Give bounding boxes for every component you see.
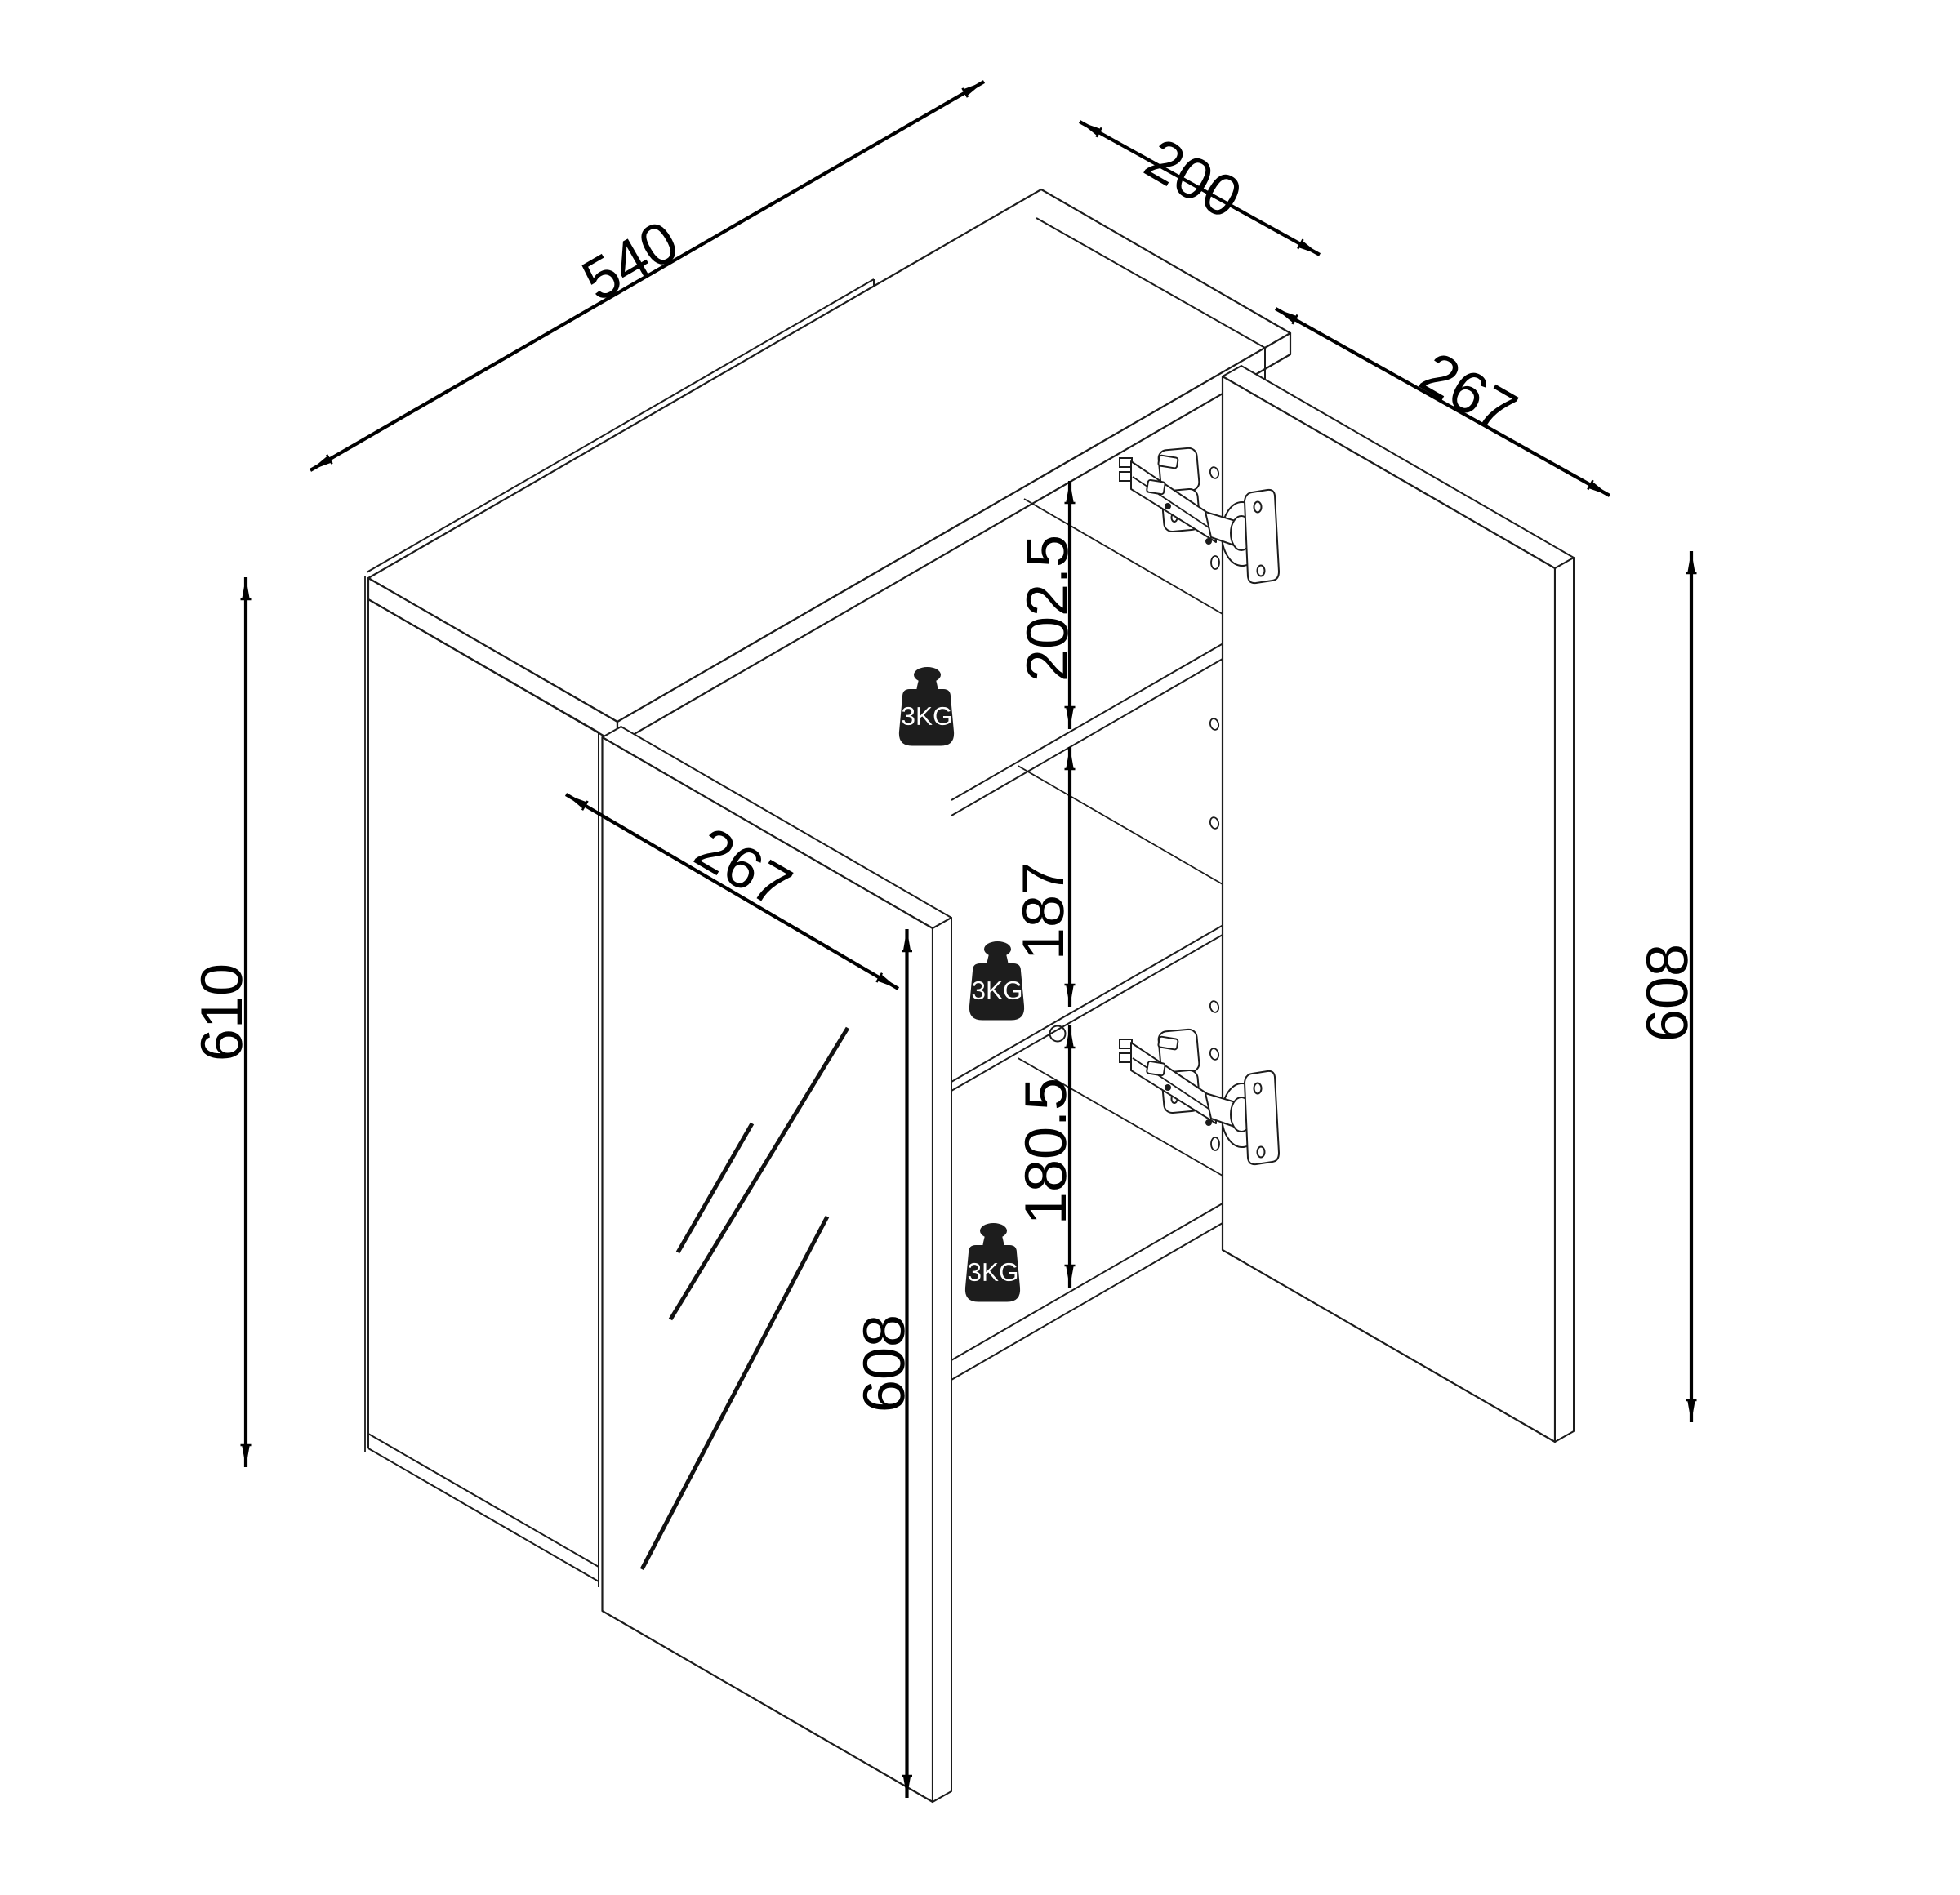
svg-text:608: 608 (852, 1314, 917, 1412)
svg-text:187: 187 (1011, 862, 1076, 960)
svg-text:180.5: 180.5 (1013, 1078, 1079, 1225)
svg-text:608: 608 (1635, 944, 1700, 1042)
svg-text:610: 610 (189, 963, 255, 1061)
svg-text:202.5: 202.5 (1015, 535, 1080, 682)
